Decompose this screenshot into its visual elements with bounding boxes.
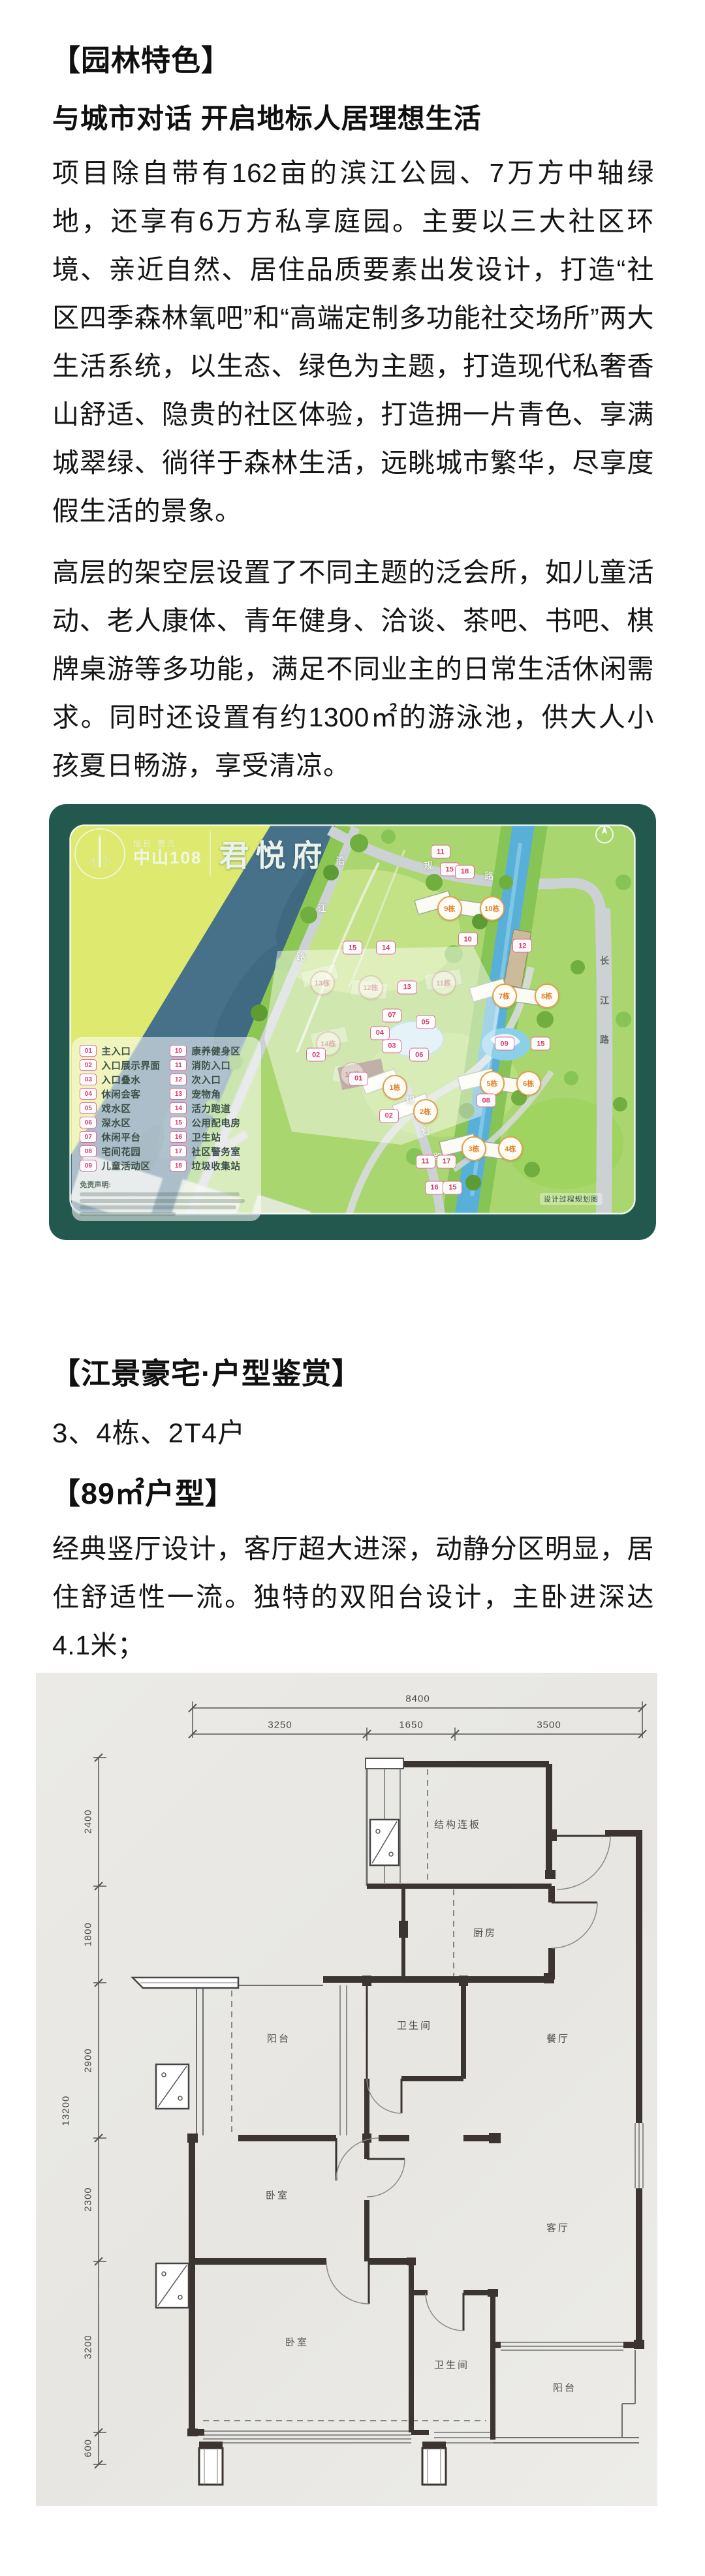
- legend-item: 08 宅间花园: [80, 1145, 163, 1157]
- logo-tower-icon: [74, 828, 125, 879]
- tower-label: 8栋: [535, 984, 559, 1008]
- tower-label: 11栋: [431, 970, 456, 995]
- legend-item: 11 消防入口: [170, 1059, 253, 1071]
- disclaimer-title: 免责声明:: [80, 1179, 253, 1190]
- road-label-char: 江: [600, 994, 609, 1007]
- amenity-badge: 15: [443, 1181, 462, 1194]
- road-label-char: 规: [424, 859, 433, 872]
- logo-divider: [210, 831, 211, 877]
- map-legend: 01 主入口 02 入口展示界面 03 入口叠水: [72, 1037, 261, 1221]
- amenity-badge: 07: [382, 1008, 401, 1022]
- tower-label: 13栋: [310, 970, 335, 995]
- compass-icon: [593, 818, 616, 850]
- legend-item-number: 04: [80, 1088, 97, 1100]
- amenity-badge: 13: [398, 980, 417, 994]
- tower-label: 10栋: [480, 896, 505, 921]
- garden-paragraph-1: 项目除自带有162亩的滨江公园、7万方中轴绿地，还享有6万方私享庭园。主要以三大…: [52, 149, 654, 535]
- legend-item: 15 公用配电房: [170, 1117, 253, 1128]
- legend-item: 09 儿童活动区: [80, 1160, 163, 1172]
- legend-item-label: 休闲平台: [101, 1130, 140, 1144]
- room-label: 厨房: [473, 1926, 497, 1940]
- room-label: 客厅: [546, 2221, 570, 2235]
- legend-item-number: 14: [170, 1102, 187, 1114]
- tower-label: 2栋: [413, 1099, 438, 1124]
- tower-label: 3栋: [462, 1136, 486, 1161]
- legend-column-1: 01 主入口 02 入口展示界面 03 入口叠水: [80, 1045, 163, 1174]
- legend-item-number: 07: [80, 1131, 97, 1143]
- legend-item: 13 宠物角: [170, 1088, 253, 1100]
- legend-item-number: 08: [80, 1145, 97, 1157]
- floorplan-paragraph: 经典竖厅设计，客厅超大进深，动静分区明显，居住舒适性一流。独特的双阳台设计，主卧…: [52, 1525, 654, 1669]
- legend-item-label: 次入口: [191, 1073, 221, 1087]
- dimension-label: 2400: [83, 1809, 94, 1833]
- legend-item-label: 戏水区: [101, 1102, 131, 1115]
- road-label-char: 沿: [336, 854, 345, 867]
- tower-label: 5栋: [480, 1071, 505, 1096]
- room-label: 卫生间: [397, 2019, 432, 2032]
- amenity-badge: 02: [379, 1109, 399, 1123]
- legend-item-number: 12: [170, 1074, 187, 1085]
- dimension-label: 1650: [399, 1720, 423, 1731]
- amenity-badge: 11: [416, 1155, 435, 1168]
- logo-name: 君悦府: [219, 832, 328, 875]
- road-label-char: 路: [484, 869, 493, 882]
- amenity-badge: 02: [306, 1048, 326, 1062]
- legend-item-number: 17: [170, 1145, 187, 1157]
- section-heading-floorplans: 【江景豪宅·户型鉴赏】: [51, 1350, 362, 1392]
- legend-item: 04 休闲会客: [80, 1088, 163, 1100]
- dimension-label: 8400: [405, 1694, 430, 1705]
- legend-item: 10 康养健身区: [170, 1045, 253, 1057]
- legend-item-label: 儿童活动区: [101, 1159, 150, 1173]
- legend-item-label: 休闲会客: [101, 1087, 140, 1101]
- amenity-badge: 08: [477, 1094, 496, 1108]
- legend-item-number: 09: [80, 1160, 97, 1172]
- map-caption: 设计过程规划图: [540, 1193, 603, 1205]
- legend-item-label: 宠物角: [191, 1087, 221, 1101]
- garden-subheading: 与城市对话 开启地标人居理想生活: [52, 97, 482, 136]
- logo-project: 中山108: [133, 848, 202, 867]
- dimension-label: 3200: [83, 2335, 94, 2359]
- amenity-badge: 04: [370, 1026, 390, 1040]
- legend-item-label: 宅间花园: [101, 1145, 140, 1158]
- legend-item: 17 社区警务室: [170, 1145, 253, 1157]
- legend-item-label: 入口展示界面: [101, 1059, 160, 1072]
- amenity-badge: 09: [495, 1037, 514, 1051]
- amenity-badge: 10: [458, 933, 478, 946]
- dimension-label: 2900: [83, 2048, 94, 2072]
- dimension-label: 3500: [537, 1720, 561, 1731]
- room-label: 阳台: [267, 2032, 290, 2045]
- tower-label: 1栋: [383, 1075, 407, 1100]
- road-label-char: 江: [318, 902, 327, 915]
- road-label-char: 路: [600, 1033, 609, 1046]
- legend-column-2: 10 康养健身区 11 消防入口 12 次入口: [170, 1045, 253, 1174]
- legend-item-number: 13: [170, 1088, 187, 1100]
- tower-label: 6栋: [516, 1071, 541, 1096]
- legend-item: 07 休闲平台: [80, 1131, 163, 1143]
- legend-item-label: 消防入口: [191, 1059, 230, 1072]
- amenity-badge: 14: [376, 941, 396, 955]
- project-logo: 旭日·置元 中山108 君悦府: [74, 828, 328, 879]
- legend-item-label: 康养健身区: [191, 1044, 240, 1058]
- legend-item-number: 15: [170, 1117, 187, 1128]
- garden-paragraph-2: 高层的架空层设置了不同主题的泛会所，如儿童活动、老人康体、青年健身、洽谈、茶吧、…: [52, 548, 654, 790]
- room-label: 卫生间: [434, 2358, 469, 2372]
- amenity-badge: 05: [416, 1016, 435, 1029]
- dimension-label: 2300: [83, 2187, 94, 2211]
- tower-label: 7栋: [492, 984, 517, 1008]
- building-units-line: 3、4栋、2T4户: [52, 1411, 245, 1451]
- tower-label: 4栋: [498, 1136, 523, 1161]
- amenity-badge: 12: [512, 939, 532, 953]
- section-heading-89sqm: 【89㎡户型】: [51, 1470, 235, 1512]
- legend-item: 05 戏水区: [80, 1102, 163, 1114]
- legend-item-label: 垃圾收集站: [191, 1159, 240, 1173]
- road-label-char: 长: [600, 954, 609, 967]
- legend-item-label: 社区警务室: [191, 1145, 240, 1158]
- room-label: 餐厅: [546, 2032, 570, 2045]
- legend-item: 18 垃圾收集站: [170, 1160, 253, 1172]
- dimension-label: 600: [83, 2439, 94, 2457]
- legend-item: 01 主入口: [80, 1045, 163, 1057]
- legend-item: 06 深水区: [80, 1117, 163, 1128]
- road-label-char: 划: [421, 1125, 430, 1138]
- amenity-badge: 16: [425, 1181, 445, 1194]
- tower-label: 9栋: [437, 896, 462, 921]
- legend-item-label: 主入口: [101, 1044, 131, 1058]
- section-heading-garden: 【园林特色】: [51, 37, 231, 79]
- tower-label: 12栋: [358, 975, 383, 1000]
- amenity-badge: 17: [437, 1155, 456, 1168]
- amenity-badge: 01: [349, 1072, 368, 1085]
- legend-item-number: 10: [170, 1045, 187, 1057]
- amenity-badge: 18: [455, 865, 475, 878]
- room-label: 阳台: [553, 2381, 576, 2395]
- legend-item: 14 活力跑道: [170, 1102, 253, 1114]
- legend-item: 12 次入口: [170, 1074, 253, 1085]
- legend-item-label: 公用配电房: [191, 1116, 240, 1130]
- legend-item-number: 16: [170, 1131, 187, 1143]
- amenity-badge: 11: [431, 845, 450, 859]
- legend-item-label: 入口叠水: [101, 1073, 140, 1087]
- dimension-label: 1800: [83, 1922, 94, 1946]
- masterplan-image: 旭日·置元 中山108 君悦府 沿江路规划路规划路长江路 9栋10栋7: [49, 804, 656, 1240]
- legend-item: 02 入口展示界面: [80, 1059, 163, 1071]
- legend-item-label: 活力跑道: [191, 1102, 230, 1115]
- room-label: 卧室: [266, 2188, 289, 2202]
- dimension-label: 3250: [268, 1720, 292, 1731]
- legend-item: 03 入口叠水: [80, 1074, 163, 1085]
- legend-item-number: 05: [80, 1102, 97, 1114]
- road-label-char: 路: [296, 950, 305, 963]
- disclaimer-text-blur: [80, 1192, 253, 1216]
- road-label-char: 规: [405, 1094, 415, 1107]
- legend-item-number: 18: [170, 1160, 187, 1172]
- legend-item-number: 06: [80, 1117, 97, 1128]
- amenity-badge: 15: [343, 941, 362, 955]
- legend-item: 16 卫生站: [170, 1131, 253, 1143]
- legend-item-label: 卫生站: [191, 1130, 221, 1144]
- article-page: 【园林特色】 与城市对话 开启地标人居理想生活 项目除自带有162亩的滨江公园、…: [0, 0, 705, 2576]
- room-label: 结构连板: [434, 1818, 481, 1831]
- legend-item-label: 深水区: [101, 1116, 131, 1130]
- floorplan-image: 结构连板厨房餐厅卫生间阳台卧室客厅卧室卫生间阳台 840032501650350…: [36, 1673, 657, 2506]
- legend-item-number: 02: [80, 1059, 97, 1071]
- amenity-badge: 03: [382, 1039, 401, 1053]
- legend-item-number: 11: [170, 1059, 187, 1071]
- dimension-label: 13200: [61, 2096, 72, 2126]
- room-label: 卧室: [285, 2335, 309, 2349]
- legend-item-number: 01: [80, 1045, 97, 1057]
- legend-item-number: 03: [80, 1074, 97, 1085]
- amenity-badge: 06: [409, 1048, 429, 1062]
- amenity-badge: 15: [531, 1037, 550, 1051]
